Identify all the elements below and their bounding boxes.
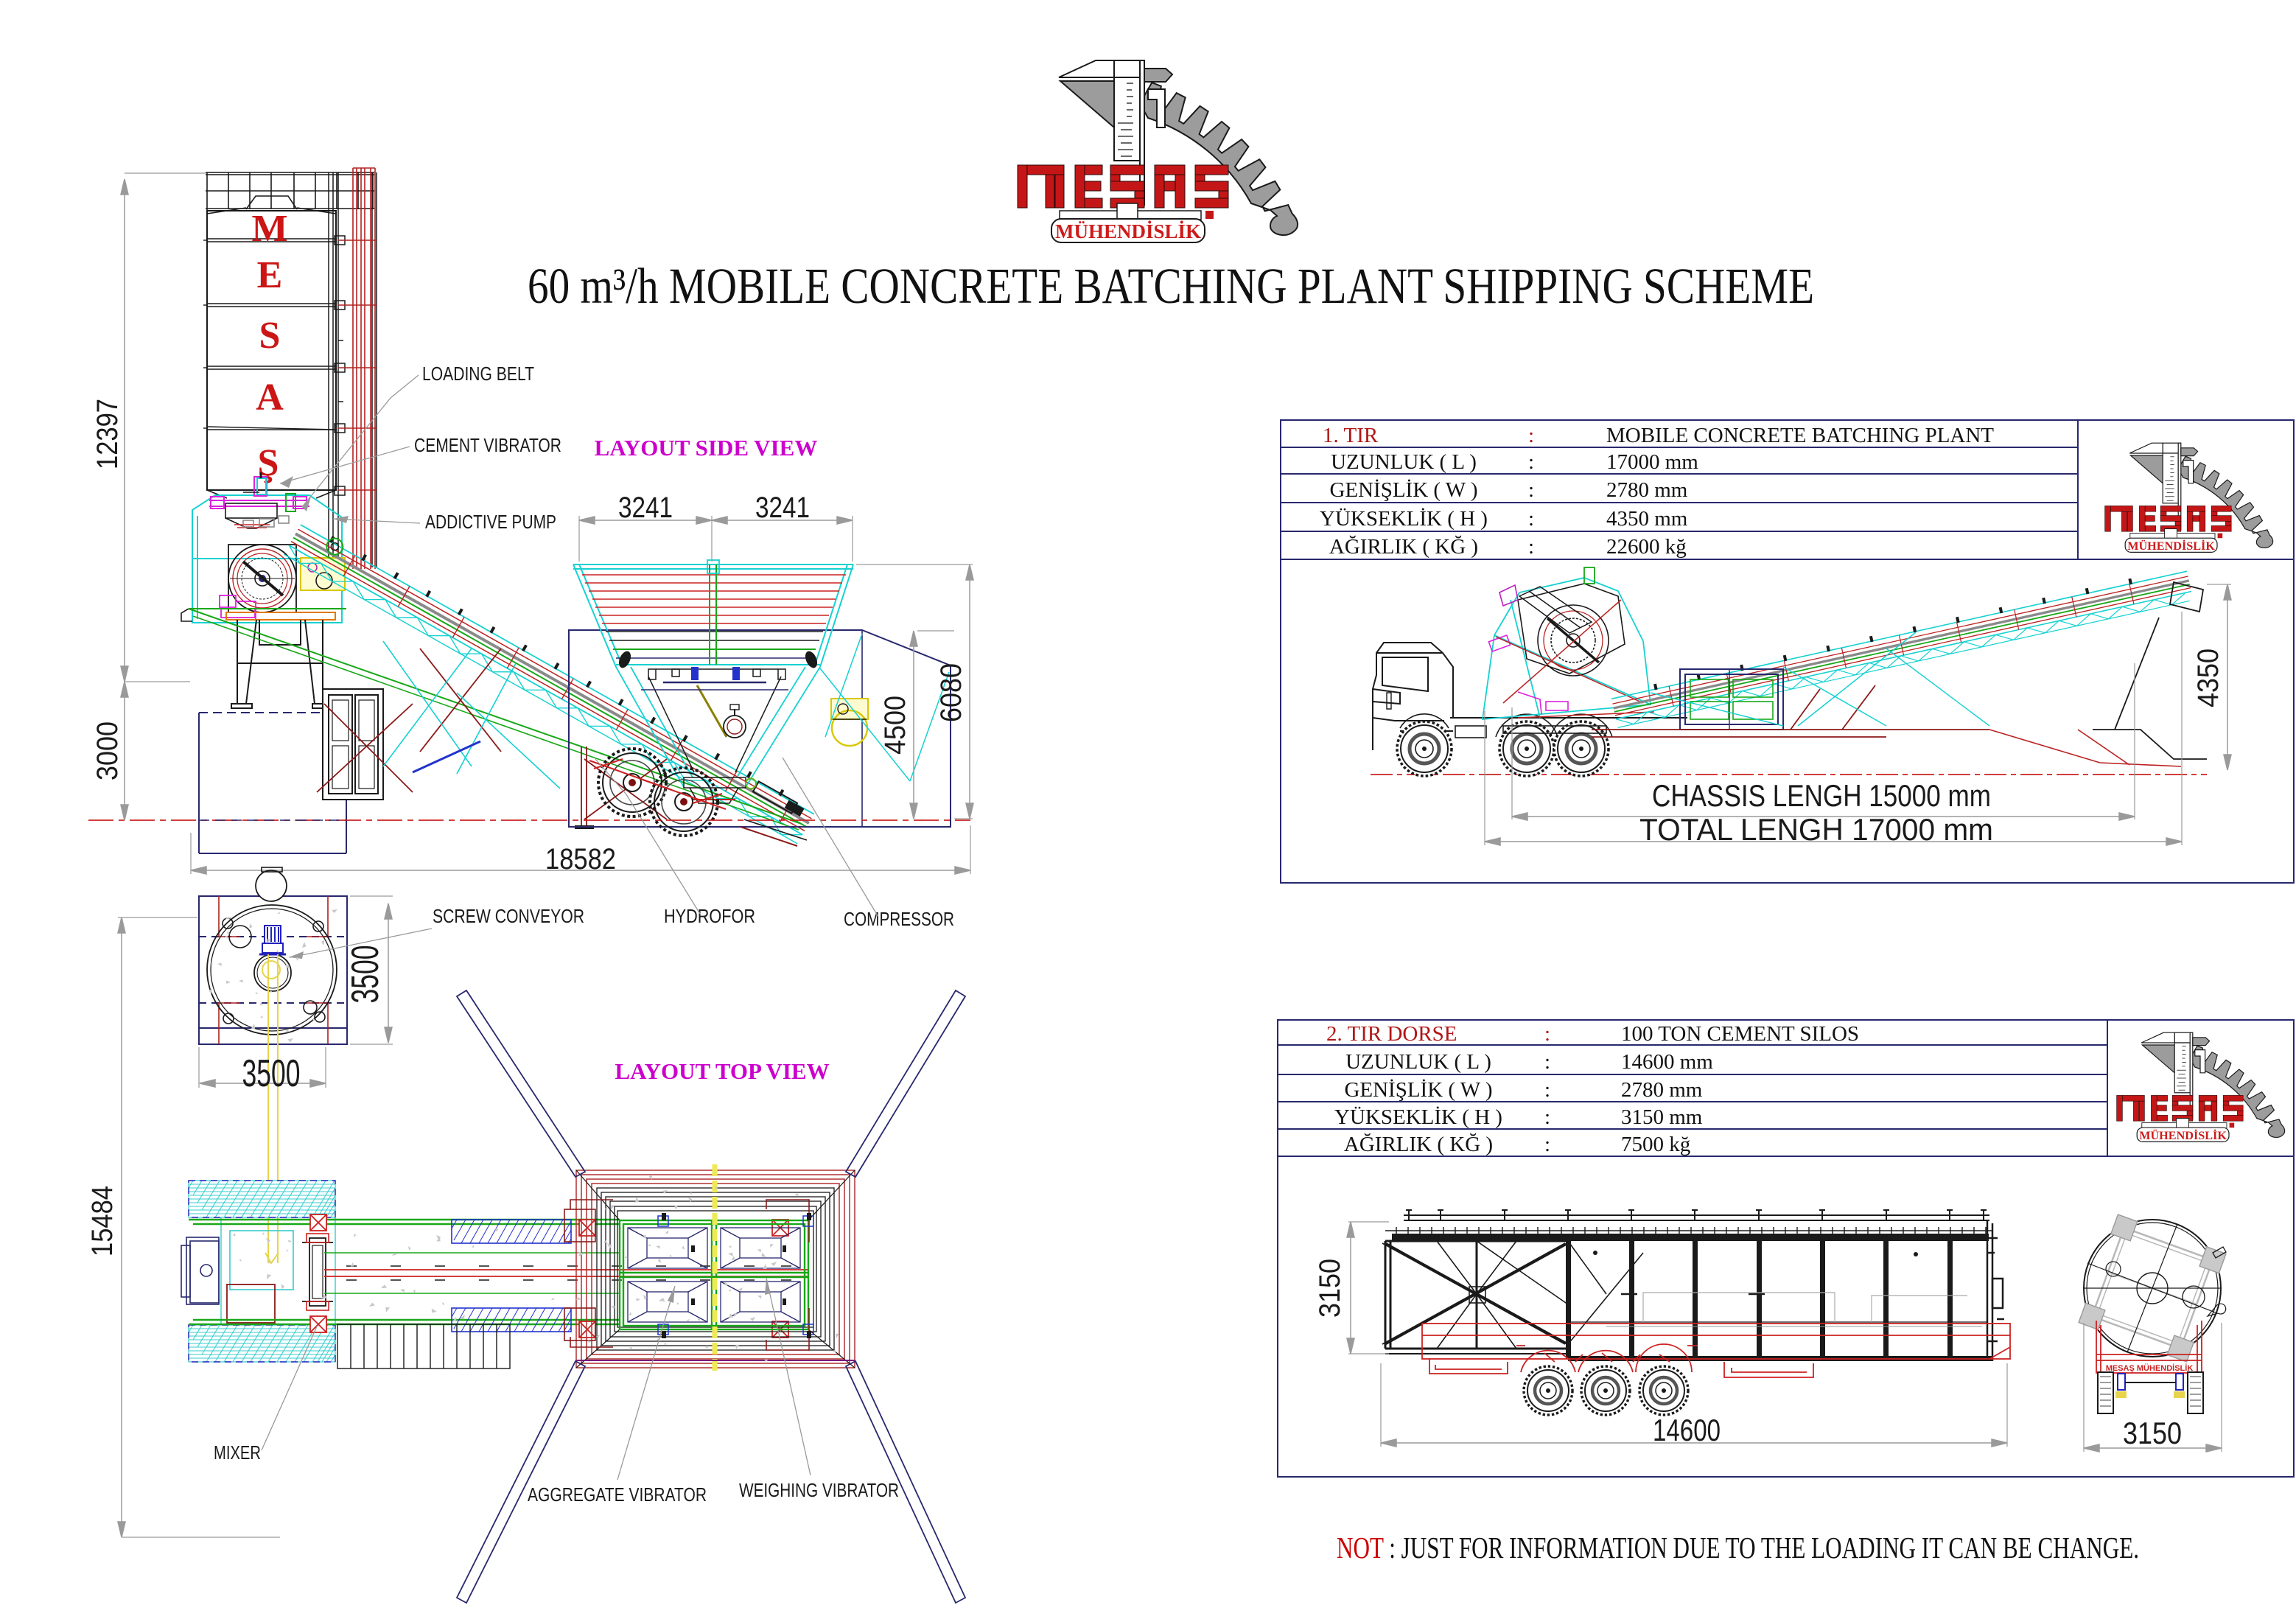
svg-text:COMPRESSOR: COMPRESSOR <box>844 908 954 930</box>
svg-text:YÜKSEKLİK ( H ): YÜKSEKLİK ( H ) <box>1334 1105 1502 1129</box>
svg-text:2780 mm: 2780 mm <box>1621 1078 1703 1102</box>
svg-text:3500: 3500 <box>242 1052 301 1095</box>
svg-text:MIXER: MIXER <box>214 1441 261 1464</box>
svg-text:LAYOUT TOP VIEW: LAYOUT TOP VIEW <box>615 1058 829 1084</box>
svg-text::: : <box>1544 1133 1550 1156</box>
svg-text::: : <box>1528 507 1534 531</box>
svg-text:2. TIR DORSE: 2. TIR DORSE <box>1326 1022 1457 1046</box>
svg-text:SCREW CONVEYOR: SCREW CONVEYOR <box>433 905 584 927</box>
svg-text:A: A <box>256 377 284 419</box>
svg-text:LOADING BELT: LOADING BELT <box>422 363 534 385</box>
svg-text::: : <box>1528 450 1534 474</box>
svg-text:ADDICTIVE PUMP: ADDICTIVE PUMP <box>425 511 556 533</box>
svg-text::: : <box>1528 535 1534 559</box>
svg-text::: : <box>1544 1078 1550 1102</box>
svg-text:22600 kğ: 22600 kğ <box>1606 535 1687 559</box>
svg-text:M: M <box>251 208 287 250</box>
svg-text:3241: 3241 <box>755 492 810 524</box>
svg-text:14600: 14600 <box>1653 1413 1721 1447</box>
svg-text:YÜKSEKLİK ( H ): YÜKSEKLİK ( H ) <box>1320 507 1488 531</box>
svg-text:GENİŞLİK ( W ): GENİŞLİK ( W ) <box>1344 1078 1492 1102</box>
svg-text:3150: 3150 <box>1314 1259 1346 1318</box>
svg-text:UZUNLUK ( L ): UZUNLUK ( L ) <box>1345 1050 1491 1074</box>
svg-text:3000: 3000 <box>91 721 124 780</box>
svg-text:6080: 6080 <box>935 663 967 722</box>
svg-text:4500: 4500 <box>879 696 911 755</box>
svg-text:NOT : JUST FOR INFORMATION DUE: NOT : JUST FOR INFORMATION DUE TO THE LO… <box>1337 1531 2139 1565</box>
svg-text:17000 mm: 17000 mm <box>1606 450 1698 474</box>
svg-text:3150: 3150 <box>2123 1416 2182 1450</box>
svg-text:GENİŞLİK ( W ): GENİŞLİK ( W ) <box>1329 478 1477 502</box>
svg-text:1. TIR: 1. TIR <box>1323 424 1379 447</box>
svg-text:12397: 12397 <box>91 399 124 469</box>
svg-text:LAYOUT SIDE VIEW: LAYOUT SIDE VIEW <box>595 435 818 461</box>
svg-text:TOTAL LENGH 17000 mm: TOTAL LENGH 17000 mm <box>1639 812 1993 847</box>
svg-text::: : <box>1528 478 1534 502</box>
svg-text:18582: 18582 <box>545 843 616 875</box>
svg-text:60 m³/h MOBILE CONCRETE BATCHI: 60 m³/h MOBILE CONCRETE BATCHING PLANT S… <box>528 258 1814 314</box>
svg-text:WEIGHING VIBRATOR: WEIGHING VIBRATOR <box>739 1479 899 1501</box>
svg-text::: : <box>1544 1022 1550 1046</box>
svg-text:E: E <box>257 254 283 296</box>
svg-text:3500: 3500 <box>344 945 387 1004</box>
svg-text::: : <box>1544 1050 1550 1074</box>
svg-text:2780 mm: 2780 mm <box>1606 478 1688 502</box>
svg-text:15484: 15484 <box>86 1186 119 1256</box>
svg-text::: : <box>1544 1105 1550 1129</box>
svg-text:HYDROFOR: HYDROFOR <box>664 905 755 927</box>
svg-text:7500 kğ: 7500 kğ <box>1621 1133 1690 1156</box>
svg-text:4350: 4350 <box>2192 649 2225 707</box>
svg-text:CEMENT VIBRATOR: CEMENT VIBRATOR <box>414 434 561 456</box>
svg-text:CHASSIS LENGH 15000 mm: CHASSIS LENGH 15000 mm <box>1652 778 1991 813</box>
svg-text:3150 mm: 3150 mm <box>1621 1105 1703 1129</box>
svg-text:3241: 3241 <box>618 492 673 524</box>
svg-text:100 TON CEMENT SILOS: 100 TON CEMENT SILOS <box>1621 1022 1859 1046</box>
svg-text:MESAŞ MÜHENDİSLİK: MESAŞ MÜHENDİSLİK <box>2106 1363 2194 1373</box>
svg-text:S: S <box>259 315 281 357</box>
svg-text:AĞIRLIK ( KĞ ): AĞIRLIK ( KĞ ) <box>1329 534 1478 559</box>
svg-text:MOBILE CONCRETE BATCHING PLANT: MOBILE CONCRETE BATCHING PLANT <box>1606 424 1994 447</box>
svg-text:14600 mm: 14600 mm <box>1621 1050 1713 1074</box>
svg-text:UZUNLUK ( L ): UZUNLUK ( L ) <box>1331 450 1477 474</box>
svg-text:4350 mm: 4350 mm <box>1606 507 1688 531</box>
svg-text:AGGREGATE VIBRATOR: AGGREGATE VIBRATOR <box>528 1483 707 1506</box>
svg-text::: : <box>1528 424 1534 447</box>
svg-text:AĞIRLIK ( KĞ ): AĞIRLIK ( KĞ ) <box>1344 1132 1493 1156</box>
